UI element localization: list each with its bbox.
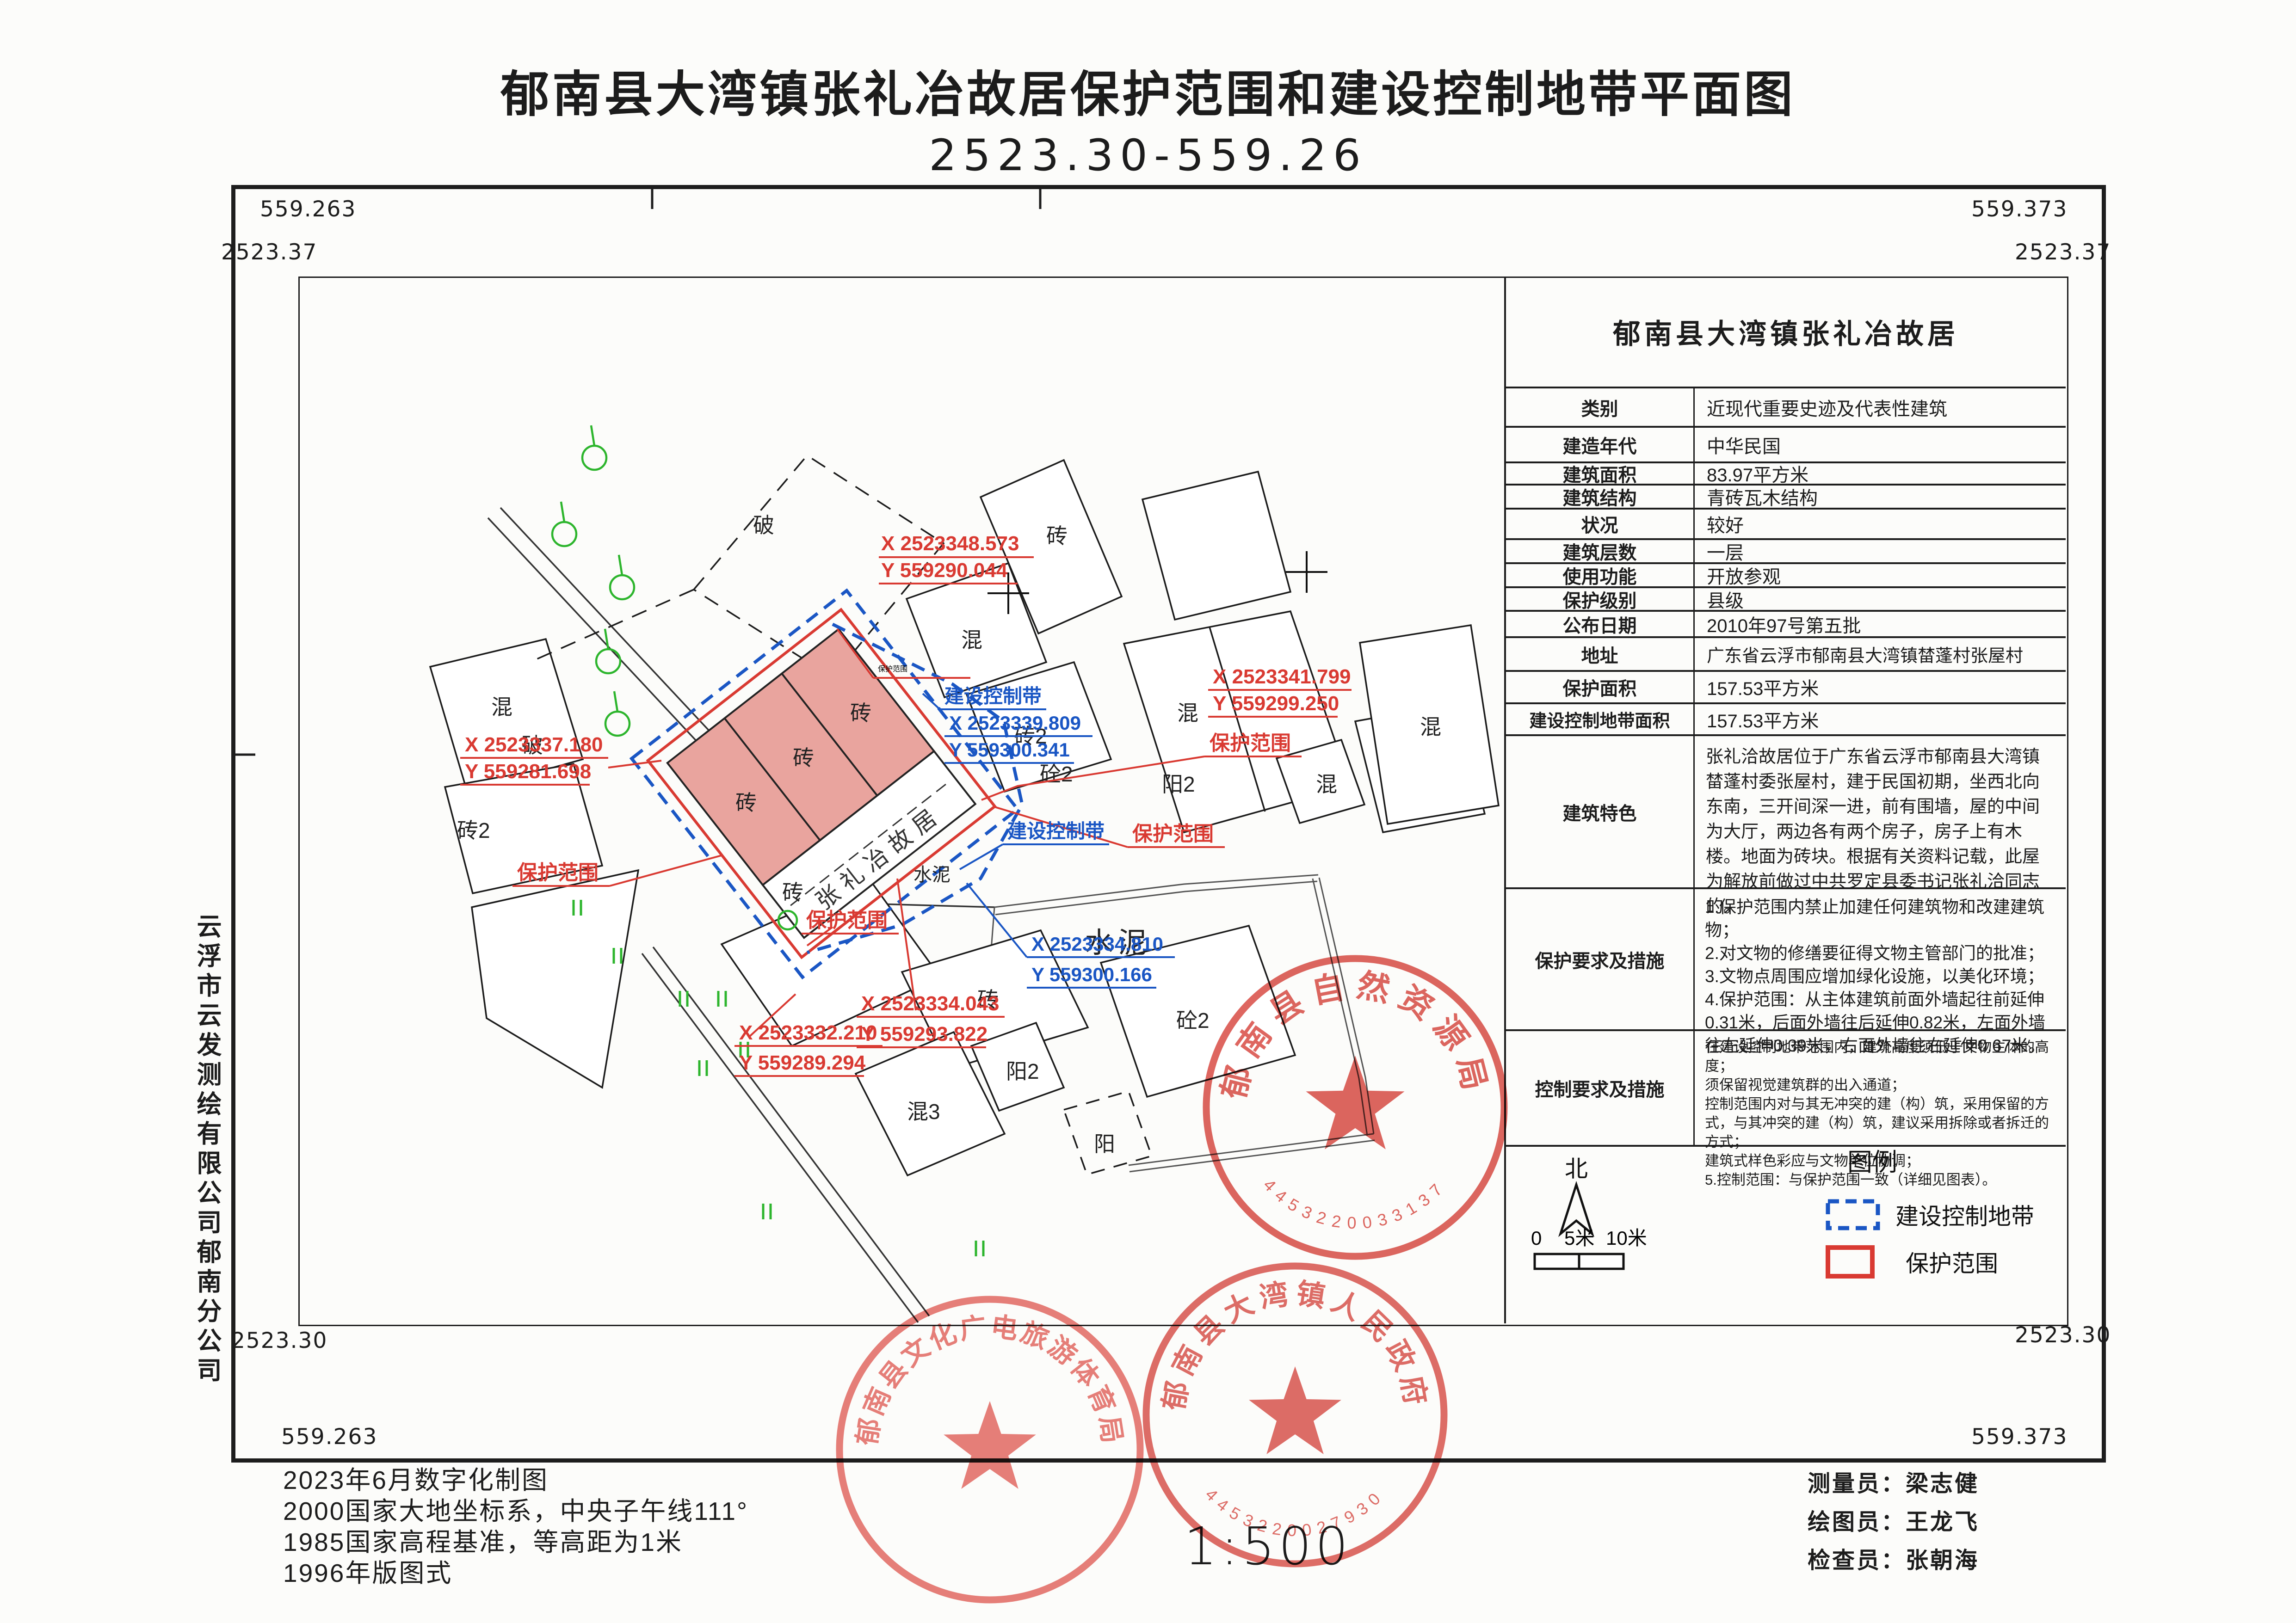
table-row-protection: 保护要求及措施 1.保护范围内禁止加建任何建筑物和改建建筑物； 2.对文物的修缮…: [1506, 889, 2066, 1031]
table-row: 建筑层数 一层: [1506, 540, 2066, 564]
table-row: 状况 较好: [1506, 510, 2066, 540]
table-row: 建筑结构 青砖瓦木结构: [1506, 486, 2066, 510]
table-row: 类别 近现代重要史迹及代表性建筑: [1506, 388, 2066, 428]
coord-top-right-x: 2523.37: [2015, 240, 2111, 265]
table-row: 保护面积 157.53平方米: [1506, 672, 2066, 704]
coord-top-left-y: 559.263: [260, 197, 356, 222]
credits-block: 测量员：梁志健 绘图员：王龙飞 检查员：张朝海: [1808, 1465, 1979, 1580]
surveyor: 测量员：梁志健: [1808, 1465, 1979, 1503]
table-row: 建造年代 中华民国: [1506, 428, 2066, 463]
features-text: 张礼洽故居位于广东省云浮市郁南县大湾镇榃蓬村委张屋村，建于民国初期，坐西北向东南…: [1695, 736, 2066, 887]
page-title: 郁南县大湾镇张礼冶故居保护范围和建设控制地带平面图: [500, 55, 1796, 126]
scale-ratio: 1:500: [1184, 1517, 1352, 1577]
table-row: 使用功能 开放参观: [1506, 564, 2066, 588]
table-row: 建筑面积 83.97平方米: [1506, 463, 2066, 486]
coord-bottom-left-y: 559.263: [281, 1424, 377, 1450]
cartography-notes: 2023年6月数字化制图 2000国家大地坐标系，中央子午线111° 1985国…: [283, 1465, 748, 1589]
table-title: 郁南县大湾镇张礼冶故居: [1506, 277, 2066, 388]
coord-top-left-x: 2523.37: [221, 240, 317, 265]
table-row-features: 建筑特色 张礼洽故居位于广东省云浮市郁南县大湾镇榃蓬村委张屋村，建于民国初期，坐…: [1506, 736, 2066, 889]
sheet-number: 2523.30-559.26: [929, 130, 1367, 181]
table-row: 保护级别 县级: [1506, 588, 2066, 612]
table-row: 地址 广东省云浮市郁南县大湾镇榃蓬村张屋村: [1506, 638, 2066, 672]
control-measures: 在建设控制地带范围内，建筑高度须低于文物主体的高度； 须保留视觉建筑群的出入通道…: [1695, 1031, 2066, 1145]
coord-bottom-left-x: 2523.30: [231, 1328, 327, 1353]
protection-measures: 1.保护范围内禁止加建任何建筑物和改建建筑物； 2.对文物的修缮要征得文物主管部…: [1695, 889, 2066, 1029]
table-row-control: 控制要求及措施 在建设控制地带范围内，建筑高度须低于文物主体的高度； 须保留视觉…: [1506, 1031, 2066, 1147]
table-row: 建设控制地带面积 157.53平方米: [1506, 704, 2066, 736]
heritage-info-table: 郁南县大湾镇张礼冶故居 类别 近现代重要史迹及代表性建筑 建造年代 中华民国 建…: [1504, 277, 2066, 1323]
inspector: 检查员：张朝海: [1808, 1542, 1979, 1580]
coord-top-right-y: 559.373: [1971, 197, 2068, 222]
survey-company: 云浮市云发测绘有限公司郁南分公司: [189, 913, 225, 1440]
draftsman: 绘图员：王龙飞: [1808, 1503, 1979, 1542]
table-row: 公布日期 2010年97号第五批: [1506, 612, 2066, 638]
coord-bottom-right-y: 559.373: [1971, 1424, 2068, 1450]
coord-bottom-right-x: 2523.30: [2015, 1322, 2111, 1348]
map-sheet: 郁南县大湾镇张礼冶故居保护范围和建设控制地带平面图 2523.30-559.26…: [0, 0, 2296, 1623]
